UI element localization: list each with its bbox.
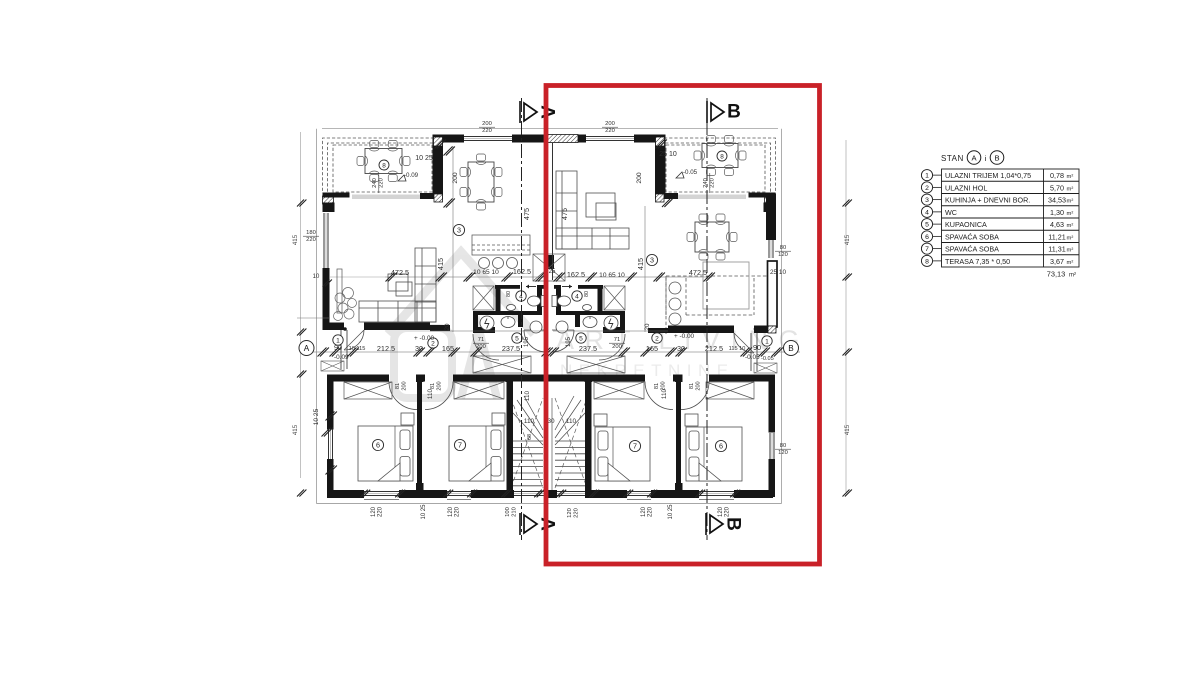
svg-text:3: 3: [457, 226, 461, 235]
svg-text:A: A: [304, 344, 310, 353]
svg-text:240: 240: [372, 178, 378, 188]
svg-text:STAN: STAN: [941, 154, 964, 163]
svg-text:1: 1: [765, 338, 769, 345]
svg-text:220: 220: [605, 128, 615, 134]
svg-text:220: 220: [379, 178, 385, 188]
svg-text:212.5: 212.5: [377, 344, 395, 353]
svg-text:-0.05: -0.05: [761, 356, 774, 362]
svg-text:415: 415: [436, 258, 445, 270]
svg-text:220: 220: [378, 506, 384, 517]
svg-text:68: 68: [527, 434, 533, 440]
svg-text:415: 415: [844, 424, 851, 435]
svg-text:10 25: 10 25: [668, 504, 674, 520]
svg-text:200: 200: [636, 172, 643, 184]
svg-text:195: 195: [566, 336, 572, 347]
svg-text:10 25: 10 25: [313, 408, 320, 425]
svg-text:-0.05: -0.05: [683, 169, 698, 176]
svg-text:472.5: 472.5: [689, 268, 707, 277]
svg-text:SPAVAĆA SOBA: SPAVAĆA SOBA: [945, 245, 999, 254]
svg-text:80: 80: [780, 443, 786, 449]
svg-text:5: 5: [515, 335, 519, 342]
svg-text:SPAVAĆA SOBA: SPAVAĆA SOBA: [945, 232, 999, 241]
svg-text:25 10: 25 10: [659, 151, 677, 158]
svg-text:220: 220: [725, 506, 731, 517]
svg-text:240: 240: [703, 178, 709, 188]
svg-text:8: 8: [720, 153, 724, 160]
svg-text:195: 195: [524, 336, 530, 347]
svg-text:81: 81: [689, 383, 695, 389]
svg-text:3: 3: [650, 256, 654, 265]
svg-text:415: 415: [844, 234, 851, 245]
svg-text:m²: m²: [1067, 260, 1074, 266]
svg-text:10: 10: [313, 274, 320, 280]
svg-text:210: 210: [512, 507, 518, 517]
svg-text:120: 120: [778, 252, 788, 258]
svg-text:237.5: 237.5: [502, 344, 520, 353]
svg-text:200: 200: [437, 381, 443, 390]
svg-text:B: B: [727, 102, 741, 123]
svg-text:7: 7: [925, 246, 929, 253]
svg-text:71: 71: [614, 337, 620, 343]
svg-text:7: 7: [633, 442, 637, 451]
svg-text:1,30: 1,30: [1050, 208, 1064, 217]
svg-text:TERASA 7,35 * 0,50: TERASA 7,35 * 0,50: [945, 257, 1010, 266]
svg-text:115 10: 115 10: [729, 346, 746, 352]
svg-text:4: 4: [575, 293, 579, 300]
svg-text:120: 120: [778, 450, 788, 456]
svg-text:30: 30: [547, 418, 555, 425]
svg-text:5,70: 5,70: [1050, 183, 1064, 192]
svg-text:200: 200: [482, 121, 492, 127]
svg-text:73,13: 73,13: [1047, 270, 1066, 279]
svg-text:10 65 10: 10 65 10: [599, 272, 625, 279]
svg-text:415: 415: [292, 234, 299, 245]
svg-text:162.5: 162.5: [513, 267, 531, 276]
svg-text:m²: m²: [1067, 174, 1074, 180]
svg-text:220: 220: [574, 508, 580, 518]
svg-text:90: 90: [753, 343, 761, 352]
svg-text:110: 110: [566, 418, 577, 425]
svg-text:20: 20: [644, 323, 651, 330]
svg-text:4: 4: [925, 209, 929, 216]
svg-text:11,31: 11,31: [1048, 245, 1065, 254]
svg-text:1: 1: [336, 337, 340, 344]
svg-text:1: 1: [925, 173, 929, 180]
svg-text:2: 2: [925, 185, 929, 192]
svg-text:120: 120: [567, 508, 573, 518]
svg-text:m²: m²: [1067, 186, 1074, 192]
svg-text:110: 110: [524, 418, 535, 425]
svg-text:71: 71: [478, 337, 484, 343]
svg-text:415: 415: [636, 258, 645, 270]
svg-text:20: 20: [444, 323, 451, 330]
svg-text:120: 120: [641, 506, 647, 517]
svg-text:81: 81: [430, 383, 436, 389]
svg-text:+ -0.00: + -0.00: [674, 333, 695, 340]
svg-text:162.5: 162.5: [567, 270, 585, 279]
svg-text:415: 415: [292, 424, 299, 435]
svg-text:m²: m²: [1067, 199, 1074, 205]
svg-text:7: 7: [458, 441, 462, 450]
svg-text:25: 25: [549, 269, 556, 275]
svg-text:120: 120: [718, 506, 724, 517]
svg-text:81: 81: [395, 383, 401, 389]
svg-text:m²: m²: [1069, 273, 1076, 279]
svg-text:180: 180: [306, 230, 316, 236]
svg-text:220: 220: [648, 506, 654, 517]
svg-text:3,67: 3,67: [1050, 257, 1064, 266]
svg-text:8: 8: [382, 162, 386, 169]
svg-text:120: 120: [371, 506, 377, 517]
svg-text:m²: m²: [1067, 223, 1074, 229]
svg-text:200: 200: [452, 172, 459, 184]
svg-text:2: 2: [655, 335, 659, 342]
svg-text:200: 200: [612, 344, 622, 350]
svg-text:WC: WC: [945, 208, 957, 217]
svg-text:10 25: 10 25: [415, 155, 433, 162]
svg-text:-0.05: -0.05: [745, 354, 760, 361]
svg-text:81: 81: [654, 383, 660, 389]
svg-text:m²: m²: [1067, 248, 1074, 254]
svg-text:B: B: [788, 344, 794, 353]
svg-text:m²: m²: [1067, 235, 1074, 241]
svg-text:KUHINJA + DNEVNI BOR.: KUHINJA + DNEVNI BOR.: [945, 196, 1030, 205]
svg-text:0,78: 0,78: [1050, 171, 1064, 180]
svg-text:200: 200: [661, 381, 667, 390]
svg-text:220: 220: [482, 128, 492, 134]
svg-text:475: 475: [522, 208, 531, 220]
svg-text:200: 200: [696, 381, 702, 390]
svg-text:-0.09: -0.09: [334, 354, 349, 361]
svg-text:10 25: 10 25: [421, 504, 427, 520]
svg-text:6: 6: [719, 442, 723, 451]
svg-text:80: 80: [780, 245, 786, 251]
svg-text:4,63: 4,63: [1050, 220, 1064, 229]
svg-text:ULAZNI TRIJEM 1,04*0,75: ULAZNI TRIJEM 1,04*0,75: [945, 171, 1031, 180]
svg-text:B: B: [994, 153, 999, 162]
svg-text:80: 80: [584, 291, 590, 297]
svg-text:80: 80: [506, 291, 512, 297]
svg-text:25 10: 25 10: [770, 269, 786, 276]
svg-text:212.5: 212.5: [705, 344, 723, 353]
svg-text:220: 220: [455, 506, 461, 517]
svg-text:200: 200: [402, 381, 408, 390]
svg-text:11,21: 11,21: [1048, 232, 1065, 241]
svg-text:5: 5: [579, 335, 583, 342]
svg-text:475: 475: [560, 208, 569, 220]
svg-text:120: 120: [448, 506, 454, 517]
svg-text:KUPAONICA: KUPAONICA: [945, 220, 987, 229]
svg-text:m²: m²: [1067, 211, 1074, 217]
svg-text:200: 200: [605, 121, 615, 127]
svg-text:237.5: 237.5: [579, 344, 597, 353]
svg-text:100: 100: [505, 507, 511, 517]
svg-text:3: 3: [925, 197, 929, 204]
svg-text:220: 220: [710, 178, 716, 188]
svg-text:34,53: 34,53: [1048, 196, 1066, 205]
svg-text:220: 220: [306, 237, 316, 243]
svg-text:+ -0.00: + -0.00: [414, 335, 435, 342]
svg-text:110: 110: [524, 390, 531, 401]
svg-text:-0.09: -0.09: [404, 172, 419, 179]
svg-text:B: B: [723, 517, 744, 531]
svg-text:6: 6: [376, 441, 380, 450]
svg-text:165: 165: [442, 344, 454, 353]
svg-text:ULAZNI HOL: ULAZNI HOL: [945, 183, 987, 192]
svg-text:6: 6: [925, 234, 929, 241]
svg-text:5: 5: [925, 222, 929, 229]
svg-text:8: 8: [925, 258, 929, 265]
svg-text:10 65 10: 10 65 10: [473, 269, 499, 276]
